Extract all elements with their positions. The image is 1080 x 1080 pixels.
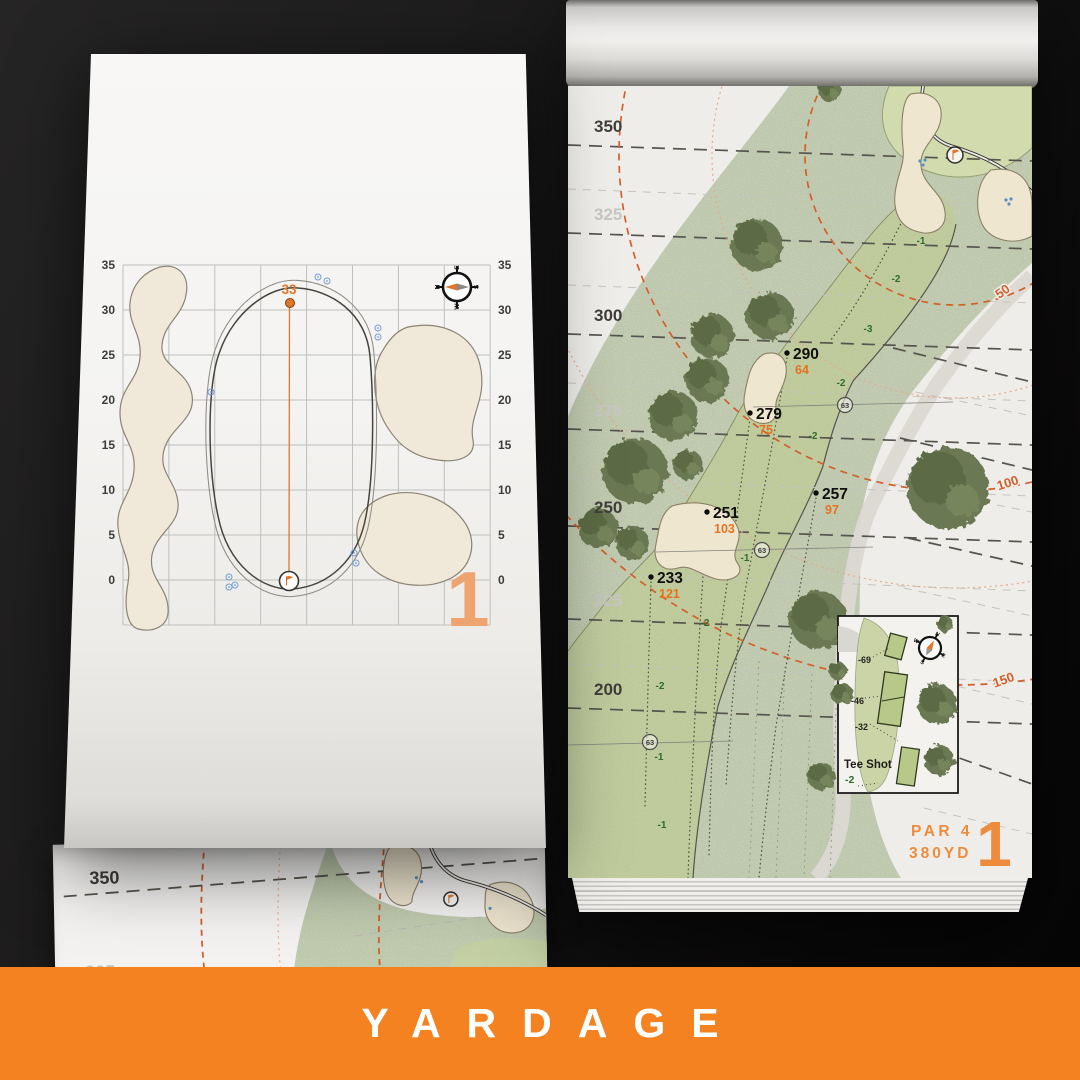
carry-label: 257: [822, 486, 848, 503]
hole-number: 1: [976, 808, 1012, 878]
inset-elevation-label: -2: [845, 774, 854, 786]
axis-label: 0: [108, 573, 115, 587]
elevation-label: -1: [917, 236, 926, 247]
tree-icon: [917, 684, 957, 724]
tree-icon: [831, 683, 853, 705]
green-detail-page: 35 30 25 20 15 10 5 0 35 30 25 20 15 10 …: [64, 54, 546, 848]
remaining-label: 64: [795, 363, 809, 377]
sprinkler-icon: [324, 278, 330, 284]
axis-label: 25: [498, 348, 512, 362]
tree-icon: [615, 526, 649, 560]
preview-arc-faint: [277, 840, 284, 976]
green-detail-map: 35 30 25 20 15 10 5 0 35 30 25 20 15 10 …: [64, 54, 546, 848]
bunker: [978, 169, 1032, 241]
elevation-label: -2: [809, 431, 818, 442]
hole-map: 50 100 150: [568, 86, 1032, 878]
sprinkler-icon: [232, 582, 238, 588]
remaining-label: 103: [714, 522, 735, 536]
axis-label: 20: [102, 393, 116, 407]
sprinkler-icon: [226, 574, 232, 580]
tree-icon: [937, 616, 953, 632]
green-outline: [206, 280, 377, 596]
compass-letter: W: [454, 303, 461, 310]
hole-flag-icon: [947, 147, 963, 163]
carry-label: 290: [793, 346, 819, 363]
elevation-label: -2: [837, 378, 846, 389]
preview-distance-label: 350: [89, 867, 119, 888]
page-stack-edges: [572, 878, 1028, 912]
compass-letter: S: [474, 284, 481, 289]
sprinkler-icons: [208, 274, 381, 590]
distance-label: 275: [594, 401, 622, 420]
tree-icon: [829, 662, 847, 680]
axis-label: 30: [102, 303, 116, 317]
elevation-label: -2: [701, 618, 710, 629]
distance-label: 250: [594, 498, 622, 517]
sprinkler-icon: [375, 325, 381, 331]
axis-label: 15: [498, 438, 512, 452]
sprinkler-icon: [315, 274, 321, 280]
tree-icon: [746, 292, 794, 340]
inset-title: Tee Shot: [844, 759, 892, 771]
banner-title: YARDAGE: [335, 1000, 744, 1047]
tree-icon: [673, 450, 703, 480]
distance-label: 325: [594, 205, 622, 224]
compass-icon: N E S W: [435, 265, 481, 310]
axis-label: 0: [498, 573, 505, 587]
tree-icon: [907, 447, 989, 529]
sprinkler-yardage: 63: [838, 398, 853, 413]
distance-label: 350: [594, 117, 622, 136]
axis-label: 10: [498, 483, 512, 497]
remaining-label: 75: [759, 423, 773, 437]
tree-icon: [685, 358, 729, 402]
tree-icon: [690, 314, 734, 358]
elevation-label: -3: [864, 324, 873, 335]
tee-offset-label: -32: [855, 722, 868, 732]
yardage-banner: YARDAGE: [0, 967, 1080, 1080]
tee-offset-label: -69: [858, 655, 871, 665]
tree-icon: [648, 391, 698, 441]
yardage-label: 380YD: [909, 845, 971, 862]
sprinkler-yardage-label: 63: [646, 738, 654, 747]
elevation-label: -2: [892, 274, 901, 285]
axis-label: 5: [108, 528, 115, 542]
compass-letter: N: [435, 284, 442, 289]
tee-offset-label: -46: [851, 696, 864, 706]
axis-label: 20: [498, 393, 512, 407]
tree-icon: [731, 219, 783, 271]
elevation-label: -1: [658, 820, 667, 831]
remaining-label: 97: [825, 503, 839, 517]
preview-arc: [200, 842, 208, 978]
bunkers: [118, 266, 482, 630]
axis-label: 35: [102, 258, 116, 272]
distance-label: 300: [594, 306, 622, 325]
sprinkler-yardage: 63: [755, 543, 770, 558]
next-page-map: 350 325: [53, 835, 548, 980]
compass-letter: E: [454, 265, 461, 270]
pin-marker: [286, 299, 295, 308]
sprinkler-icon: [226, 584, 232, 590]
pin-distance-label: 33: [281, 282, 297, 297]
carry-label: 233: [657, 570, 683, 587]
axis-label: 25: [102, 348, 116, 362]
sprinkler-yardage-label: 63: [841, 401, 849, 410]
remaining-label: 121: [659, 587, 680, 601]
axis-labels-right: 35 30 25 20 15 10 5 0: [498, 258, 512, 587]
preview-flag-marker: [444, 892, 458, 906]
sprinkler-yardage: 63: [643, 735, 658, 750]
par-label: PAR 4: [911, 823, 973, 840]
hole-number: 1: [446, 555, 489, 643]
axis-label: 10: [102, 483, 116, 497]
axis-label: 30: [498, 303, 512, 317]
hole-map-svg: 50 100 150: [568, 86, 1032, 878]
elevation-label: -1: [655, 752, 664, 763]
pin-line: [289, 306, 290, 574]
elevation-label: -2: [656, 681, 665, 692]
bunker: [118, 266, 193, 630]
preview-distance-line: [63, 858, 545, 896]
axis-labels-left: 35 30 25 20 15 10 5 0: [102, 258, 116, 587]
hole-map-page: 50 100 150: [566, 0, 1038, 944]
sprinkler-icon: [375, 334, 381, 340]
hole-flag-icon: [280, 572, 299, 591]
tree-icon: [807, 762, 835, 790]
axis-label: 5: [498, 528, 505, 542]
carry-label: 279: [756, 406, 782, 423]
tee-shot-inset: -69 -46 -32 Tee Shot -2 N: [829, 616, 958, 793]
axis-label: 15: [102, 438, 116, 452]
tree-icon: [924, 745, 954, 775]
sprinkler-yardage-label: 63: [758, 546, 766, 555]
carry-label: 251: [713, 505, 739, 522]
next-page-preview: 350 325: [53, 835, 548, 980]
flipped-page-roll: [566, 0, 1038, 90]
bunker: [375, 325, 482, 460]
axis-label: 35: [498, 258, 512, 272]
sprinkler-icon: [353, 560, 359, 566]
tree-icon: [602, 438, 668, 504]
distance-label: 225: [594, 591, 622, 610]
elevation-label: -1: [741, 553, 750, 564]
distance-label: 200: [594, 680, 622, 699]
